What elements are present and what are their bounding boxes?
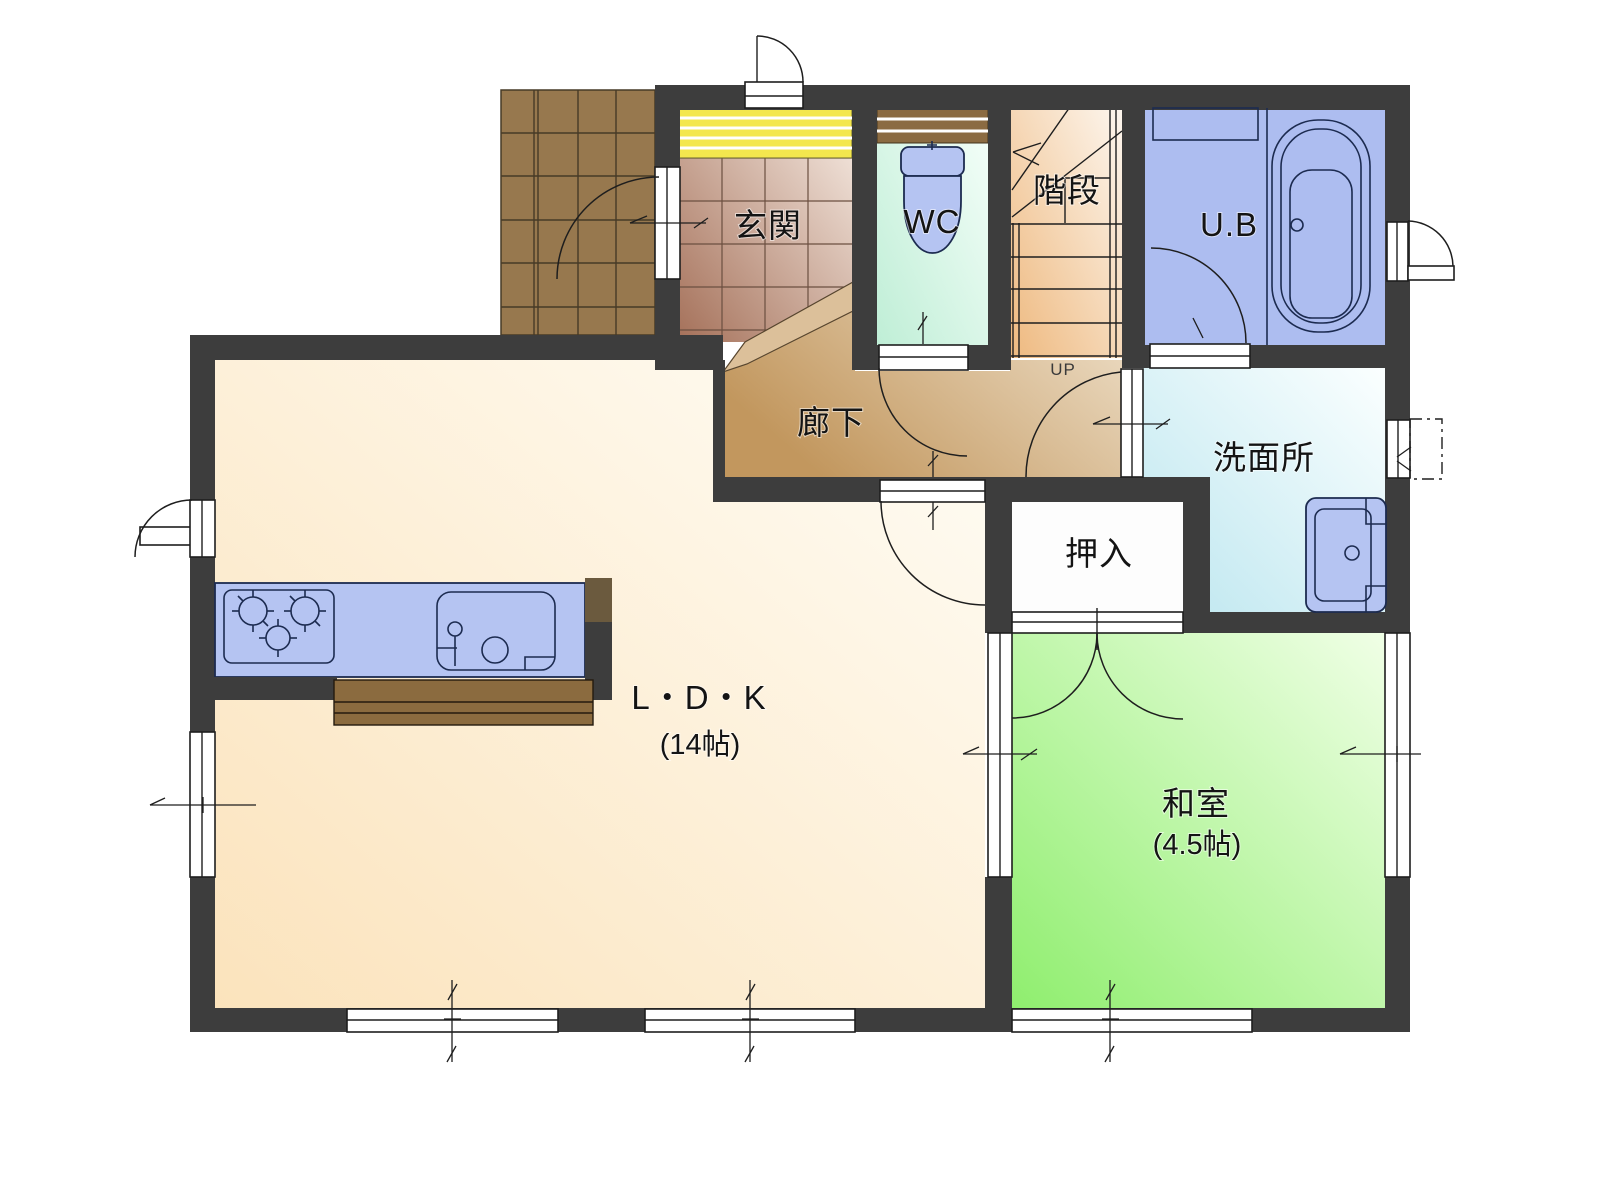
genkan-mat	[679, 108, 852, 158]
floor-plan-page: 玄関 WC 階段 U.B 廊下 洗面所 押入 L・D・K (14帖) 和室 (4…	[0, 0, 1600, 1200]
label-wc: WC	[904, 203, 961, 240]
wc-shelf	[877, 108, 988, 143]
label-ldk-size: (14帖)	[660, 728, 741, 761]
label-washitsu-size: (4.5帖)	[1153, 828, 1242, 861]
room-bath-floor	[1145, 108, 1385, 345]
entrance-door	[745, 36, 803, 108]
kitchen-service-door	[135, 500, 215, 557]
bar-counter	[334, 680, 593, 725]
label-washroom: 洗面所	[1213, 439, 1315, 476]
label-closet: 押入	[1065, 535, 1133, 572]
washroom-right-window	[1387, 419, 1442, 479]
label-ldk: L・D・K	[631, 679, 766, 716]
label-washitsu: 和室	[1162, 785, 1230, 822]
exterior-unit-dashed-box	[1410, 419, 1442, 479]
label-stairs-up: UP	[1050, 360, 1076, 379]
label-hallway: 廊下	[797, 404, 865, 441]
washbasin	[1306, 498, 1386, 612]
floor-plan-canvas: 玄関 WC 階段 U.B 廊下 洗面所 押入 L・D・K (14帖) 和室 (4…	[0, 0, 1600, 1200]
label-stairs: 階段	[1033, 172, 1101, 209]
label-genkan: 玄関	[734, 207, 802, 244]
kitchen-low-wall	[190, 677, 337, 700]
label-bath: U.B	[1200, 206, 1258, 243]
bath-exterior-door	[1387, 221, 1454, 281]
counter-end-panel	[585, 578, 612, 622]
room-stairs-floor	[1011, 108, 1122, 358]
